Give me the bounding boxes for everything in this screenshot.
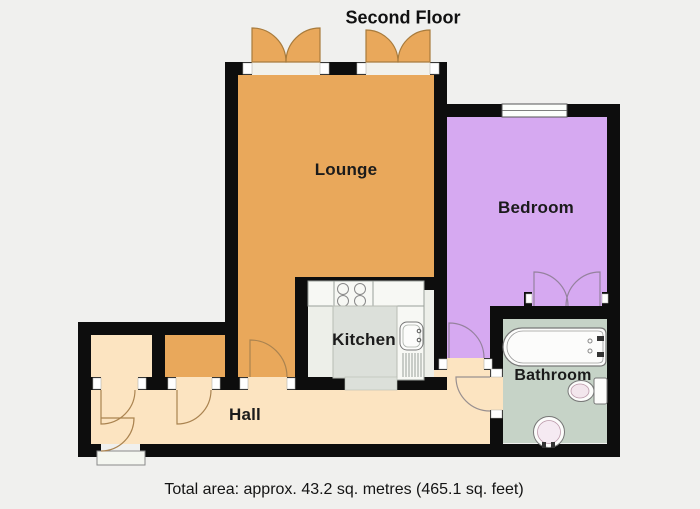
- toilet-cistern: [594, 378, 607, 404]
- toilet-bowl-inner: [571, 384, 589, 398]
- kitchen-drainer: [403, 353, 421, 377]
- lounge-label: Lounge: [315, 160, 378, 180]
- opening-fill: [101, 377, 138, 390]
- total-area-caption: Total area: approx. 43.2 sq. metres (465…: [164, 481, 523, 499]
- french-door-right-leaf-1: [286, 28, 320, 62]
- french-door-left-leaf-1: [252, 28, 286, 62]
- bedroom-label: Bedroom: [498, 198, 574, 218]
- kitchen-label: Kitchen: [332, 330, 396, 350]
- opening-fill: [252, 62, 320, 75]
- kitchen-island-lower: [345, 377, 397, 390]
- kitchen-sink: [400, 322, 423, 350]
- page-title: Second Floor: [345, 8, 460, 29]
- bathroom-label: Bathroom: [514, 367, 591, 385]
- cupboard-right-floor: [165, 335, 225, 377]
- opening-fill: [366, 62, 430, 75]
- cupboard-left-floor: [91, 335, 152, 377]
- french-door-left-leaf-2: [366, 30, 398, 62]
- bath-tub: [503, 328, 606, 366]
- opening-fill: [176, 377, 212, 390]
- hall-label: Hall: [229, 405, 261, 425]
- french-door-right-leaf-2: [398, 30, 430, 62]
- basin-inner: [538, 421, 561, 444]
- opening-fill: [248, 377, 287, 390]
- opening-fill: [447, 358, 484, 370]
- opening-fill: [490, 377, 503, 410]
- entrance-threshold: [97, 451, 145, 465]
- floorplan-page: Second Floor Lounge Bedroom Kitchen Bath…: [0, 0, 700, 509]
- floorplan-drawing: [0, 0, 700, 509]
